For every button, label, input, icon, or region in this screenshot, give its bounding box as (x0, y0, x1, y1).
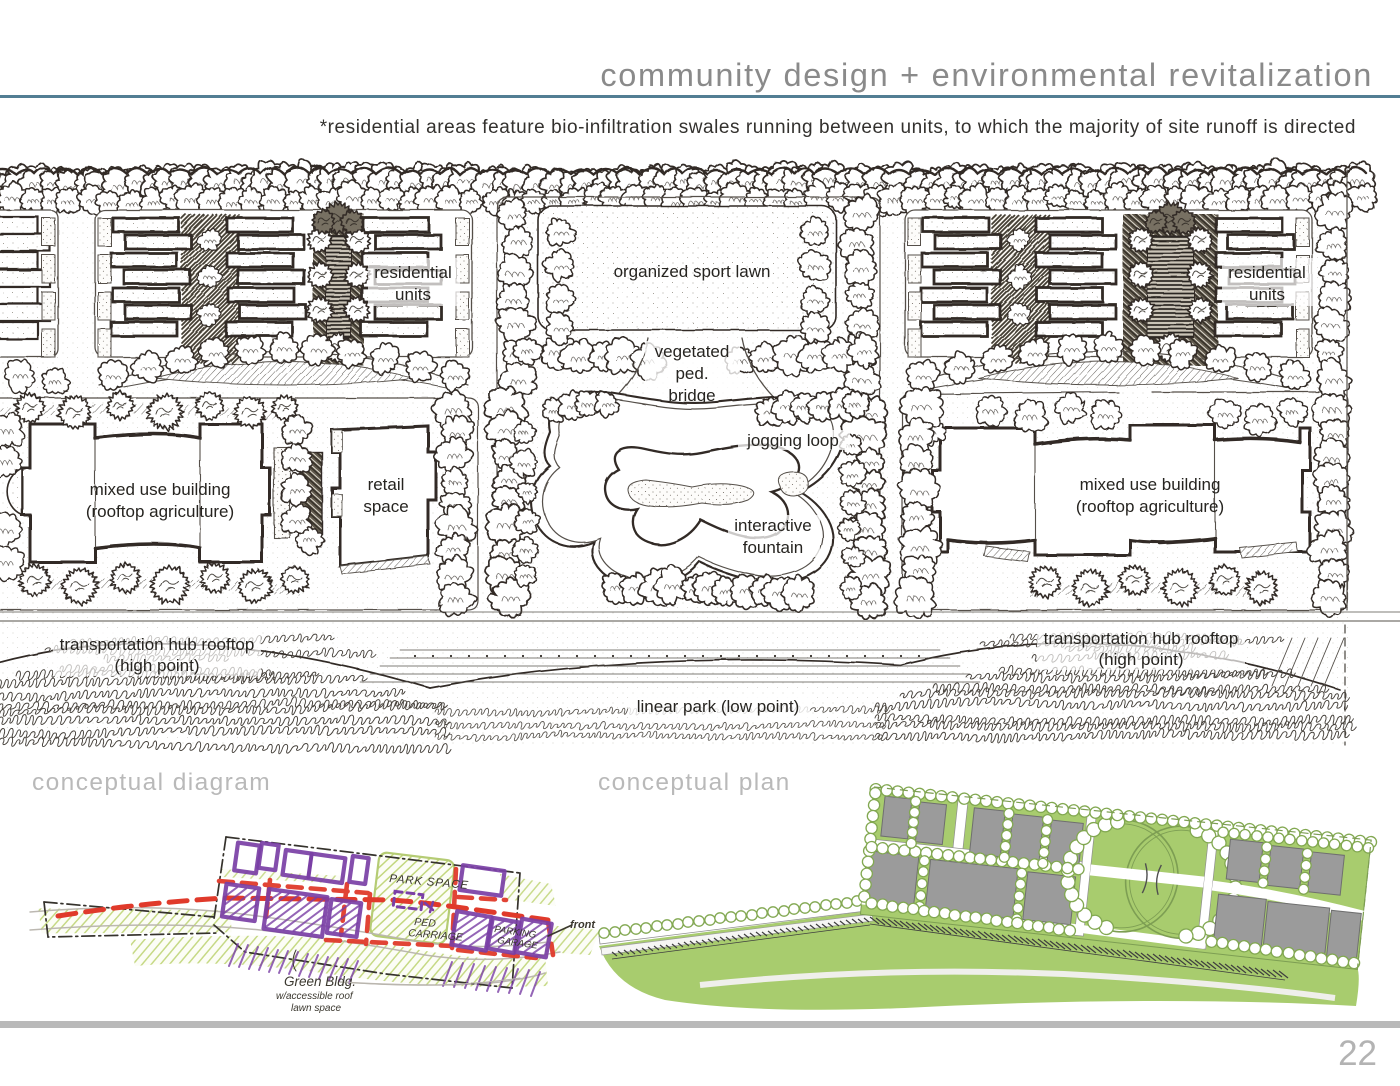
svg-text:front: front (570, 919, 596, 931)
svg-text:mixed use building: mixed use building (1080, 475, 1221, 494)
svg-text:interactive: interactive (734, 516, 811, 535)
svg-text:units: units (395, 285, 431, 304)
svg-text:space: space (363, 497, 408, 516)
svg-text:mixed use building: mixed use building (90, 480, 231, 499)
svg-text:(high point): (high point) (1098, 650, 1183, 669)
svg-text:jogging loop: jogging loop (746, 431, 839, 450)
svg-text:transportation hub rooftop: transportation hub rooftop (60, 635, 255, 654)
svg-text:transportation hub rooftop: transportation hub rooftop (1044, 629, 1239, 648)
svg-text:fountain: fountain (743, 538, 804, 557)
svg-text:organized sport lawn: organized sport lawn (614, 262, 771, 281)
svg-text:vegetated: vegetated (655, 342, 730, 361)
svg-text:(high point): (high point) (114, 656, 199, 675)
svg-text:retail: retail (368, 475, 405, 494)
svg-text:(rooftop agriculture): (rooftop agriculture) (1076, 497, 1224, 516)
svg-text:lawn space: lawn space (291, 1003, 341, 1014)
svg-text:w/accessible roof: w/accessible roof (276, 991, 354, 1002)
svg-text:Green Bldg.: Green Bldg. (284, 974, 356, 989)
svg-text:(rooftop agriculture): (rooftop agriculture) (86, 502, 234, 521)
svg-text:linear park (low point): linear park (low point) (637, 697, 800, 716)
svg-text:units: units (1249, 285, 1285, 304)
svg-text:ped.: ped. (675, 364, 708, 383)
svg-text:residential: residential (374, 263, 452, 282)
svg-text:residential: residential (1228, 263, 1306, 282)
